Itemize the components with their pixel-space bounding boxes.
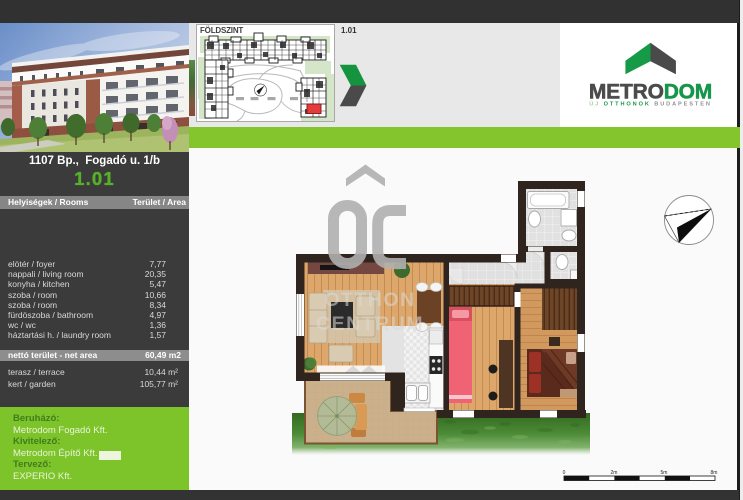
svg-text:OTTHON: OTTHON: [324, 289, 415, 311]
svg-text:8m: 8m: [711, 470, 718, 476]
svg-text:0: 0: [563, 470, 566, 476]
svg-text:CENTRUM: CENTRUM: [316, 313, 424, 335]
svg-text:5m: 5m: [661, 470, 668, 476]
svg-text:2m: 2m: [611, 470, 618, 476]
